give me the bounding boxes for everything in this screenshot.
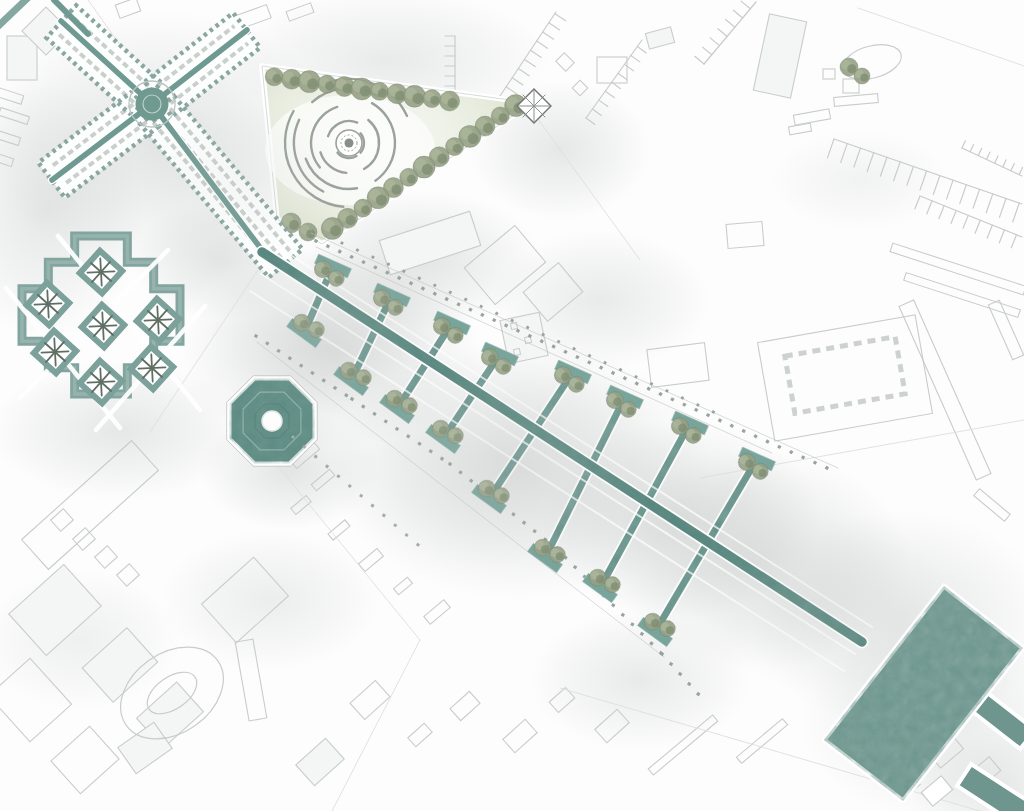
tree [298, 71, 320, 93]
tree-canopy-dark [454, 333, 462, 341]
tree [371, 82, 389, 100]
tree-canopy-dark [860, 74, 868, 82]
tree-canopy-dark [666, 626, 674, 634]
tree [752, 463, 768, 479]
tree-canopy-dark [346, 215, 356, 225]
tree-canopy-dark [483, 123, 493, 133]
tree [404, 85, 426, 107]
tree [644, 613, 661, 630]
fog-blob [210, 250, 450, 410]
tree-canopy-dark [412, 93, 423, 104]
fog-blob [130, 100, 350, 260]
tree-canopy-dark [596, 575, 605, 584]
site-plan-drawing [0, 0, 1024, 811]
tree [589, 569, 606, 586]
tree [440, 91, 460, 111]
center-dot [345, 139, 354, 148]
tree-canopy-dark [360, 86, 371, 97]
building-outline [7, 36, 37, 80]
tree-canopy-dark [330, 225, 341, 236]
site-plan-canvas [0, 0, 1024, 811]
tree-canopy-dark [325, 81, 334, 90]
tree-canopy-dark [453, 144, 462, 153]
tree-canopy-dark [376, 195, 387, 206]
tree [685, 427, 701, 443]
basin-center [262, 411, 282, 431]
tree-canopy-dark [407, 175, 416, 184]
tree [318, 75, 336, 93]
tree-canopy-dark [692, 433, 700, 441]
tree-canopy-dark [422, 164, 433, 175]
tree [659, 621, 675, 637]
tree-canopy-dark [468, 133, 479, 144]
fog-blob [690, 510, 950, 690]
tree-canopy-dark [430, 96, 439, 105]
tree-canopy-dark [651, 619, 660, 628]
tree-canopy-dark [307, 78, 318, 89]
tree-canopy-dark [678, 424, 687, 433]
tree [854, 68, 870, 84]
tree [351, 78, 373, 100]
tree-canopy-dark [499, 113, 508, 122]
crossing-dome [136, 88, 169, 121]
tree-canopy-dark [759, 469, 767, 477]
tree-canopy-dark [611, 582, 619, 590]
tree-canopy-dark [391, 185, 401, 195]
tree [604, 577, 620, 593]
tree-canopy-dark [272, 74, 281, 83]
tree-canopy-dark [745, 460, 754, 469]
tree-canopy-dark [448, 98, 458, 108]
tree [423, 90, 441, 108]
tree-canopy-dark [378, 89, 387, 98]
tree-canopy-dark [437, 154, 447, 164]
tree-canopy-dark [361, 205, 370, 214]
tree [265, 68, 283, 86]
